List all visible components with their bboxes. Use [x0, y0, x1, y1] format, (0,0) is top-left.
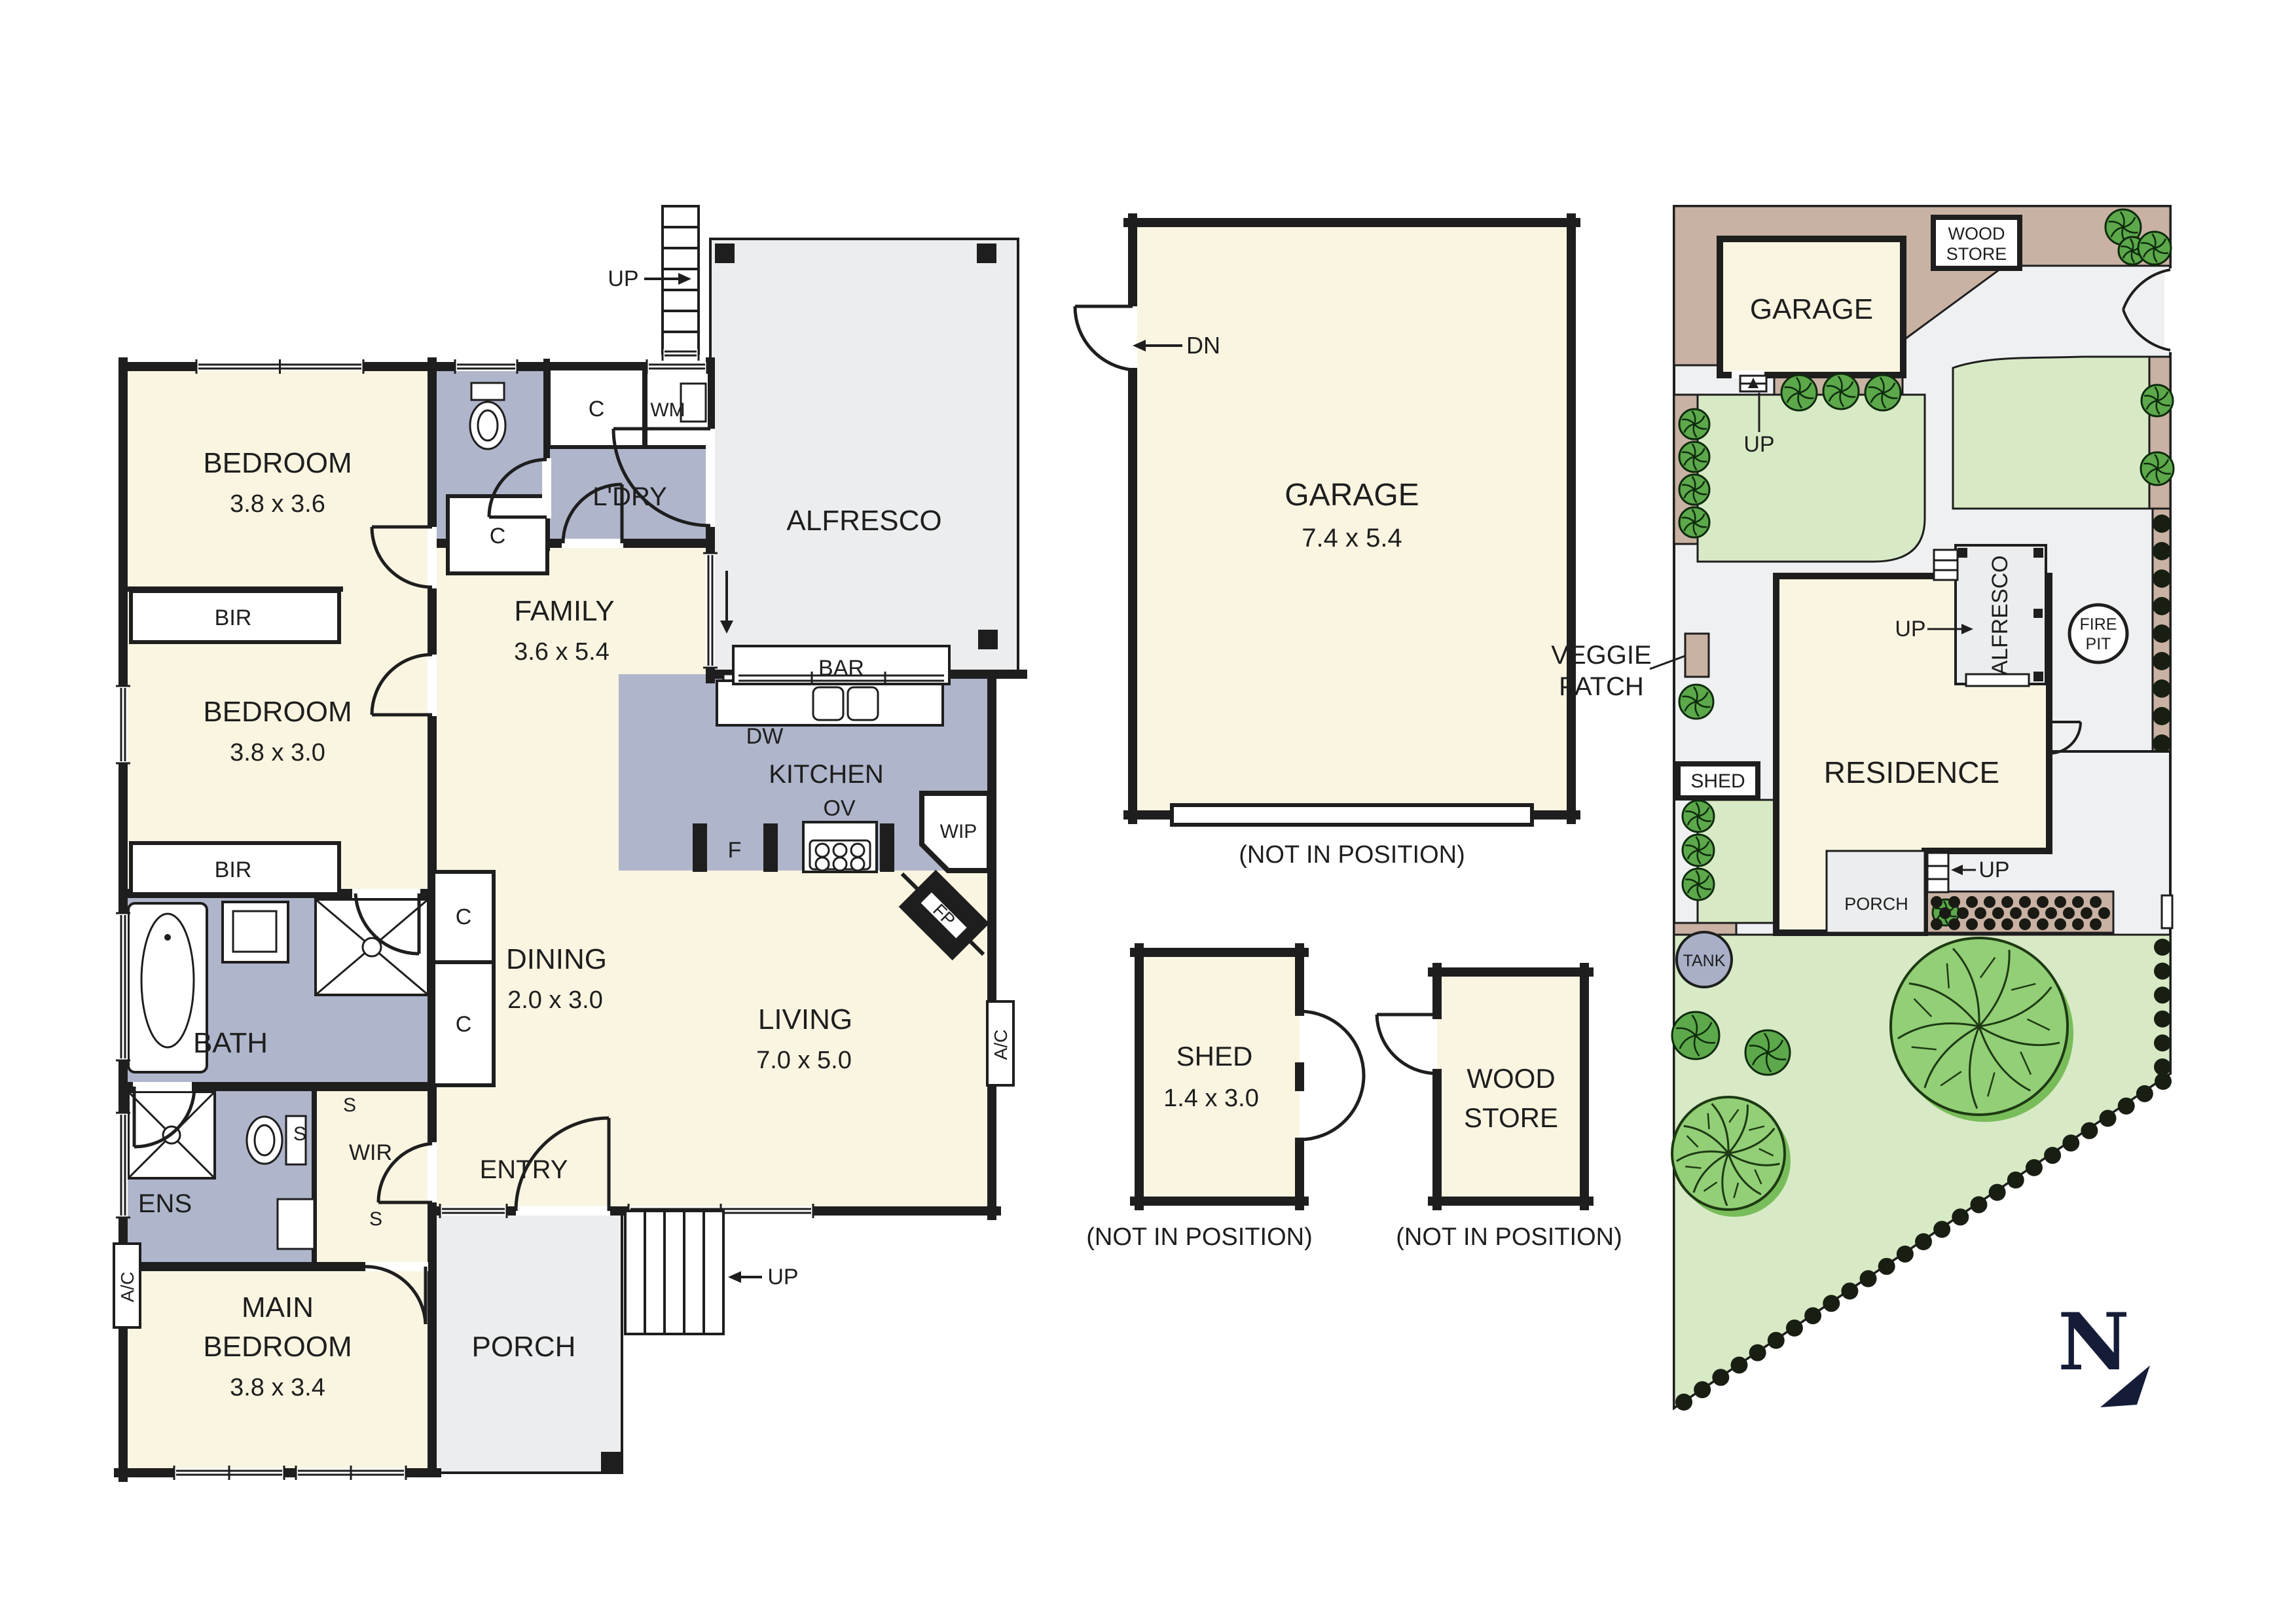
window: [118, 686, 128, 763]
hedge-dot-icon: [1804, 1307, 1821, 1324]
hedge-dot-icon: [2153, 597, 2171, 615]
ac-label: A/C: [117, 1272, 137, 1303]
speckle-dot: [1992, 907, 2004, 919]
speckle-dot: [1984, 896, 1995, 908]
up-label: UP: [767, 1265, 798, 1289]
hedge-dot-icon: [2007, 1172, 2024, 1189]
c-label: C: [456, 1012, 472, 1037]
site-plan: GARAGE WOOD STORE UP RESIDENCE: [1551, 206, 2176, 1411]
bedroom1-dims: 3.8 x 3.6: [230, 490, 325, 518]
veggie-label: VEGGIE: [1551, 641, 1651, 670]
speckle-dot: [2001, 918, 2013, 930]
garage-door-panel: [1172, 805, 1532, 825]
window: [647, 362, 707, 371]
site-porch: PORCH: [1827, 851, 1925, 933]
shower-icon: [316, 899, 428, 995]
ov-label: OV: [823, 796, 855, 821]
tree-icon: [1679, 409, 1709, 439]
window: [118, 1113, 128, 1217]
tree-icon: [1683, 869, 1714, 900]
main-bedroom-label2: BEDROOM: [203, 1331, 352, 1363]
veggie-label2: PATCH: [1559, 672, 1644, 701]
tree-icon: [2138, 232, 2171, 264]
garage-note: (NOT IN POSITION): [1239, 841, 1465, 869]
tree-icon: [2141, 452, 2174, 485]
hedge-dot-icon: [2153, 679, 2171, 698]
alfresco-post-icon: [977, 243, 996, 263]
speckle-dot: [1931, 896, 1942, 908]
hedge-dot-icon: [2153, 652, 2171, 670]
tree-icon: [1672, 1012, 1719, 1059]
hedge-dot-icon: [1915, 1233, 1932, 1250]
ac-label: A/C: [991, 1030, 1011, 1060]
tree-icon: [1781, 375, 1817, 410]
hedge-dot-icon: [1749, 1344, 1766, 1361]
site-shed-label: SHED: [1690, 770, 1745, 792]
hedge-dot-icon: [1841, 1282, 1858, 1299]
wm-label: WM: [650, 399, 685, 421]
hedge-dot-icon: [2153, 542, 2171, 560]
ens-label: ENS: [138, 1189, 192, 1218]
main-bedroom-label: MAIN: [242, 1291, 314, 1324]
site-woodstore-label: WOOD: [1948, 224, 2005, 243]
shed-plan: SHED 1.4 x 3.0 (NOT IN POSITION): [1086, 948, 1364, 1251]
s-label: S: [343, 1094, 356, 1116]
garage-floor: [1133, 223, 1571, 815]
hedge-dot-icon: [2154, 963, 2171, 980]
kitchen-label: KITCHEN: [769, 760, 884, 789]
alfresco-post-icon: [978, 630, 998, 649]
hedge-dot-icon: [1786, 1320, 1803, 1337]
up-label: UP: [1743, 432, 1774, 457]
window: [118, 913, 128, 1060]
woodstore-note: (NOT IN POSITION): [1396, 1223, 1622, 1251]
main-floorplan: FP: [114, 206, 1023, 1480]
hedge-dot-icon: [2153, 514, 2171, 533]
speckle-dot: [1984, 918, 1995, 930]
up-label: UP: [1978, 857, 2009, 882]
vanity-icon: [223, 902, 288, 962]
tree-icon: [1679, 685, 1713, 719]
f-label: F: [728, 838, 742, 863]
speckle-dot: [2098, 907, 2110, 919]
tank-label: TANK: [1683, 952, 1726, 970]
lawn: [1953, 357, 2149, 509]
speckle-dot: [2037, 896, 2049, 908]
shed-dims: 1.4 x 3.0: [1163, 1085, 1259, 1112]
hedge-dot-icon: [2154, 1011, 2171, 1028]
hedge-dot-icon: [2155, 1073, 2172, 1090]
hedge-dot-icon: [1989, 1184, 2006, 1201]
tree-icon: [1745, 1030, 1790, 1075]
hedge-dot-icon: [1712, 1369, 1729, 1386]
speckle-dot: [2072, 896, 2084, 908]
woodstore-plan: WOOD STORE (NOT IN POSITION): [1377, 967, 1622, 1251]
bedroom2-dims: 3.8 x 3.0: [230, 739, 325, 766]
bench-divider: [763, 823, 778, 872]
up-label: UP: [1895, 617, 1925, 641]
site-shed: SHED: [1678, 764, 1758, 798]
hedge-dot-icon: [1675, 1394, 1692, 1411]
wip-label: WIP: [940, 821, 977, 842]
tree-icon: [1679, 475, 1709, 505]
living-label: LIVING: [758, 1003, 852, 1036]
lawn: [1698, 395, 1925, 562]
speckle-dot: [2054, 918, 2066, 930]
tree-icon: [2141, 385, 2173, 416]
s-label: S: [293, 1123, 306, 1145]
site-speckles: [1931, 896, 2110, 930]
hedge-dot-icon: [1823, 1295, 1840, 1312]
bench-divider: [880, 823, 894, 872]
wir-label: WIR: [349, 1140, 392, 1165]
speckle-dot: [2081, 907, 2092, 919]
alfresco-post-icon: [715, 243, 735, 263]
wc-toilet-icon: [470, 383, 505, 449]
veggie-patch-bed: [1685, 634, 1709, 677]
bath-label: BATH: [193, 1027, 268, 1059]
bedroom1-label: BEDROOM: [203, 447, 352, 479]
door-arc-icon: [1300, 1011, 1364, 1140]
c-label: C: [456, 905, 472, 929]
c-label: C: [589, 397, 605, 422]
hedge-dot-icon: [2100, 1110, 2117, 1127]
speckle-dot: [2001, 896, 2013, 908]
window: [706, 553, 715, 668]
door-arc-icon: [1377, 1015, 1437, 1073]
hedge-dot-icon: [2118, 1098, 2135, 1115]
tank-icon: TANK: [1677, 932, 1732, 987]
tree-icon: [1683, 801, 1714, 832]
floorplan-page: FP: [0, 0, 2296, 1622]
hedge-dot-icon: [1952, 1208, 1969, 1225]
speckle-dot: [2063, 907, 2075, 919]
stair-icon: [1740, 376, 1766, 391]
hedge-dot-icon: [1878, 1258, 1895, 1275]
speckle-dot: [2054, 896, 2066, 908]
tree-icon: [1865, 375, 1901, 410]
alfresco-area: [710, 239, 1018, 674]
family-label: FAMILY: [514, 595, 614, 627]
site-garage-label: GARAGE: [1750, 293, 1873, 325]
window: [455, 362, 517, 371]
hedge-dot-icon: [2153, 569, 2171, 588]
up-label: UP: [608, 266, 638, 291]
hedge-dot-icon: [2026, 1159, 2043, 1176]
dw-label: DW: [746, 724, 784, 749]
bir1-label: BIR: [215, 605, 252, 630]
shed-label: SHED: [1176, 1041, 1253, 1072]
firepit-icon: FIRE PIT: [2069, 605, 2127, 662]
alfresco-label: ALFRESCO: [786, 505, 941, 537]
speckle-dot: [2090, 918, 2102, 930]
window: [663, 349, 699, 358]
speckle-dot: [1975, 907, 1986, 919]
ens-basin-icon: [278, 1199, 314, 1249]
hedge-dot-icon: [2154, 986, 2171, 1003]
sink-icon: [813, 687, 843, 720]
floorplan-drawing: FP: [0, 0, 2296, 1622]
hedge-dot-icon: [2153, 707, 2171, 725]
porch-label: PORCH: [472, 1331, 576, 1363]
speckle-dot: [2019, 896, 2031, 908]
hedge-dot-icon: [2062, 1134, 2079, 1151]
speckle-dot: [1948, 896, 1960, 908]
shed-floor: [1139, 952, 1300, 1201]
garage-plan: DN GARAGE 7.4 x 5.4 (NOT IN POSITION): [1075, 218, 1576, 869]
speckle-dot: [2028, 907, 2039, 919]
speckle-dot: [1957, 907, 1969, 919]
firepit-label: FIRE: [2080, 615, 2117, 634]
living-dims: 7.0 x 5.0: [756, 1047, 852, 1074]
tree-icon: [1683, 835, 1714, 866]
door-arc-icon: [1075, 306, 1133, 370]
bir2-label: BIR: [215, 857, 252, 882]
stair-icon: [1927, 853, 1948, 892]
ac-unit: A/C: [114, 1244, 140, 1327]
speckle-dot: [2045, 907, 2057, 919]
site-residence-label: RESIDENCE: [1824, 755, 1999, 789]
family-dims: 3.6 x 5.4: [514, 638, 610, 666]
tree-icon: [1679, 442, 1709, 472]
site-woodstore: WOOD STORE: [1933, 217, 2020, 268]
speckle-dot: [1966, 896, 1978, 908]
hedge-dot-icon: [2153, 624, 2171, 643]
garage-label: GARAGE: [1285, 478, 1419, 513]
sink-icon: [848, 687, 878, 720]
speckle-dot: [2090, 896, 2102, 908]
hedge-dot-icon: [1694, 1381, 1711, 1398]
hedge-dot-icon: [2136, 1085, 2153, 1102]
site-alfresco: ALFRESCO: [1956, 545, 2046, 686]
speckle-dot: [2037, 918, 2049, 930]
hedge-dot-icon: [1730, 1356, 1747, 1373]
hedge-dot-icon: [1933, 1221, 1950, 1238]
site-porch-label: PORCH: [1844, 894, 1908, 914]
firepit-label2: PIT: [2086, 635, 2111, 653]
garden-bed: [2149, 357, 2170, 509]
hedge-dot-icon: [1897, 1246, 1914, 1263]
gate-gap: [2164, 268, 2176, 352]
hedge-dot-icon: [1970, 1196, 1987, 1213]
speckle-dot: [2072, 918, 2084, 930]
ac-unit: A/C: [987, 1001, 1013, 1085]
hedge-dot-icon: [2153, 734, 2171, 753]
site-alfresco-label: ALFRESCO: [1988, 555, 2013, 675]
porch-post-icon: [601, 1452, 622, 1473]
speckle-dot: [1948, 918, 1960, 930]
speckle-dot: [1931, 918, 1942, 930]
stove-icon: [803, 822, 877, 872]
s-label: S: [369, 1208, 382, 1230]
hedge-dot-icon: [1860, 1271, 1877, 1288]
tree-icon: [1679, 507, 1709, 537]
main-bedroom-dims: 3.8 x 3.4: [230, 1374, 325, 1401]
speckle-dot: [2010, 907, 2022, 919]
tree-icon: [1823, 374, 1859, 409]
shed-note: (NOT IN POSITION): [1086, 1223, 1313, 1251]
window: [440, 1206, 507, 1216]
bar-label: BAR: [818, 656, 864, 681]
hedge-dot-icon: [2081, 1122, 2098, 1139]
site-woodstore-label2: STORE: [1946, 244, 2007, 264]
dining-dims: 2.0 x 3.0: [507, 986, 603, 1014]
gate-gap: [2162, 895, 2172, 928]
stair-icon: [1934, 550, 1958, 580]
speckle-dot: [1939, 907, 1951, 919]
hedge-dot-icon: [2154, 1034, 2171, 1051]
bedroom2-label: BEDROOM: [203, 696, 352, 728]
laundry-label: L'DRY: [592, 482, 667, 511]
dining-label: DINING: [506, 943, 607, 975]
garage-dims: 7.4 x 5.4: [1302, 524, 1402, 552]
north-label: N: [2058, 1296, 2130, 1388]
woodstore-label: WOOD: [1467, 1063, 1555, 1094]
garage-door-gap: [1128, 306, 1137, 368]
hedge-dot-icon: [2154, 939, 2171, 956]
hedge-dot-icon: [2044, 1147, 2061, 1164]
dn-label: DN: [1186, 332, 1220, 359]
speckle-dot: [1966, 918, 1978, 930]
woodstore-label2: STORE: [1464, 1102, 1558, 1133]
speckle-dot: [2019, 918, 2031, 930]
up-arrow: UP: [728, 1265, 799, 1289]
hedge-dot-icon: [1768, 1332, 1785, 1349]
c-label: C: [490, 524, 506, 549]
entry-label: ENTRY: [480, 1155, 568, 1184]
porch-stairs-icon: [625, 1211, 723, 1334]
north-compass: N: [2058, 1296, 2150, 1407]
bench-divider: [693, 823, 707, 872]
